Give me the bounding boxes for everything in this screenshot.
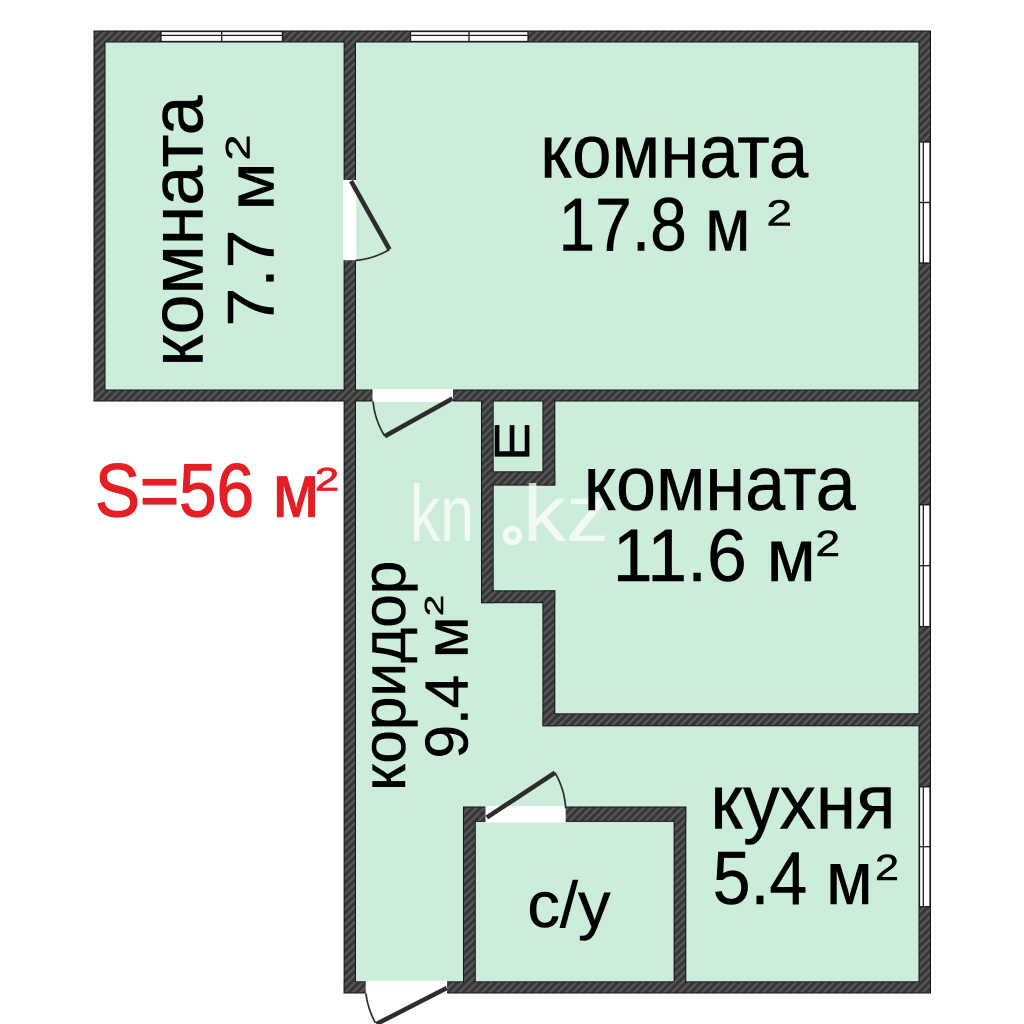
svg-text:коридор: коридор [350,561,418,791]
svg-text:комната: комната [135,95,218,367]
svg-text:2: 2 [315,462,339,498]
svg-text:17.8 м: 17.8 м [559,183,751,267]
svg-text:5.4 м: 5.4 м [713,836,873,920]
svg-text:2: 2 [767,193,793,234]
svg-text:2: 2 [816,523,841,564]
svg-text:2: 2 [875,847,899,888]
svg-text:с/у: с/у [527,868,611,941]
svg-text:S=56 м: S=56 м [95,449,319,533]
svg-text:комната: комната [540,110,808,194]
svg-text:кухня: кухня [711,760,896,846]
svg-text:2: 2 [220,135,258,161]
svg-text:11.6 м: 11.6 м [613,514,816,597]
svg-text:2: 2 [421,595,449,616]
svg-text:9.4 м: 9.4 м [414,617,481,759]
svg-text:7.7 м: 7.7 м [214,163,288,327]
svg-text:kn: kn [410,469,474,558]
